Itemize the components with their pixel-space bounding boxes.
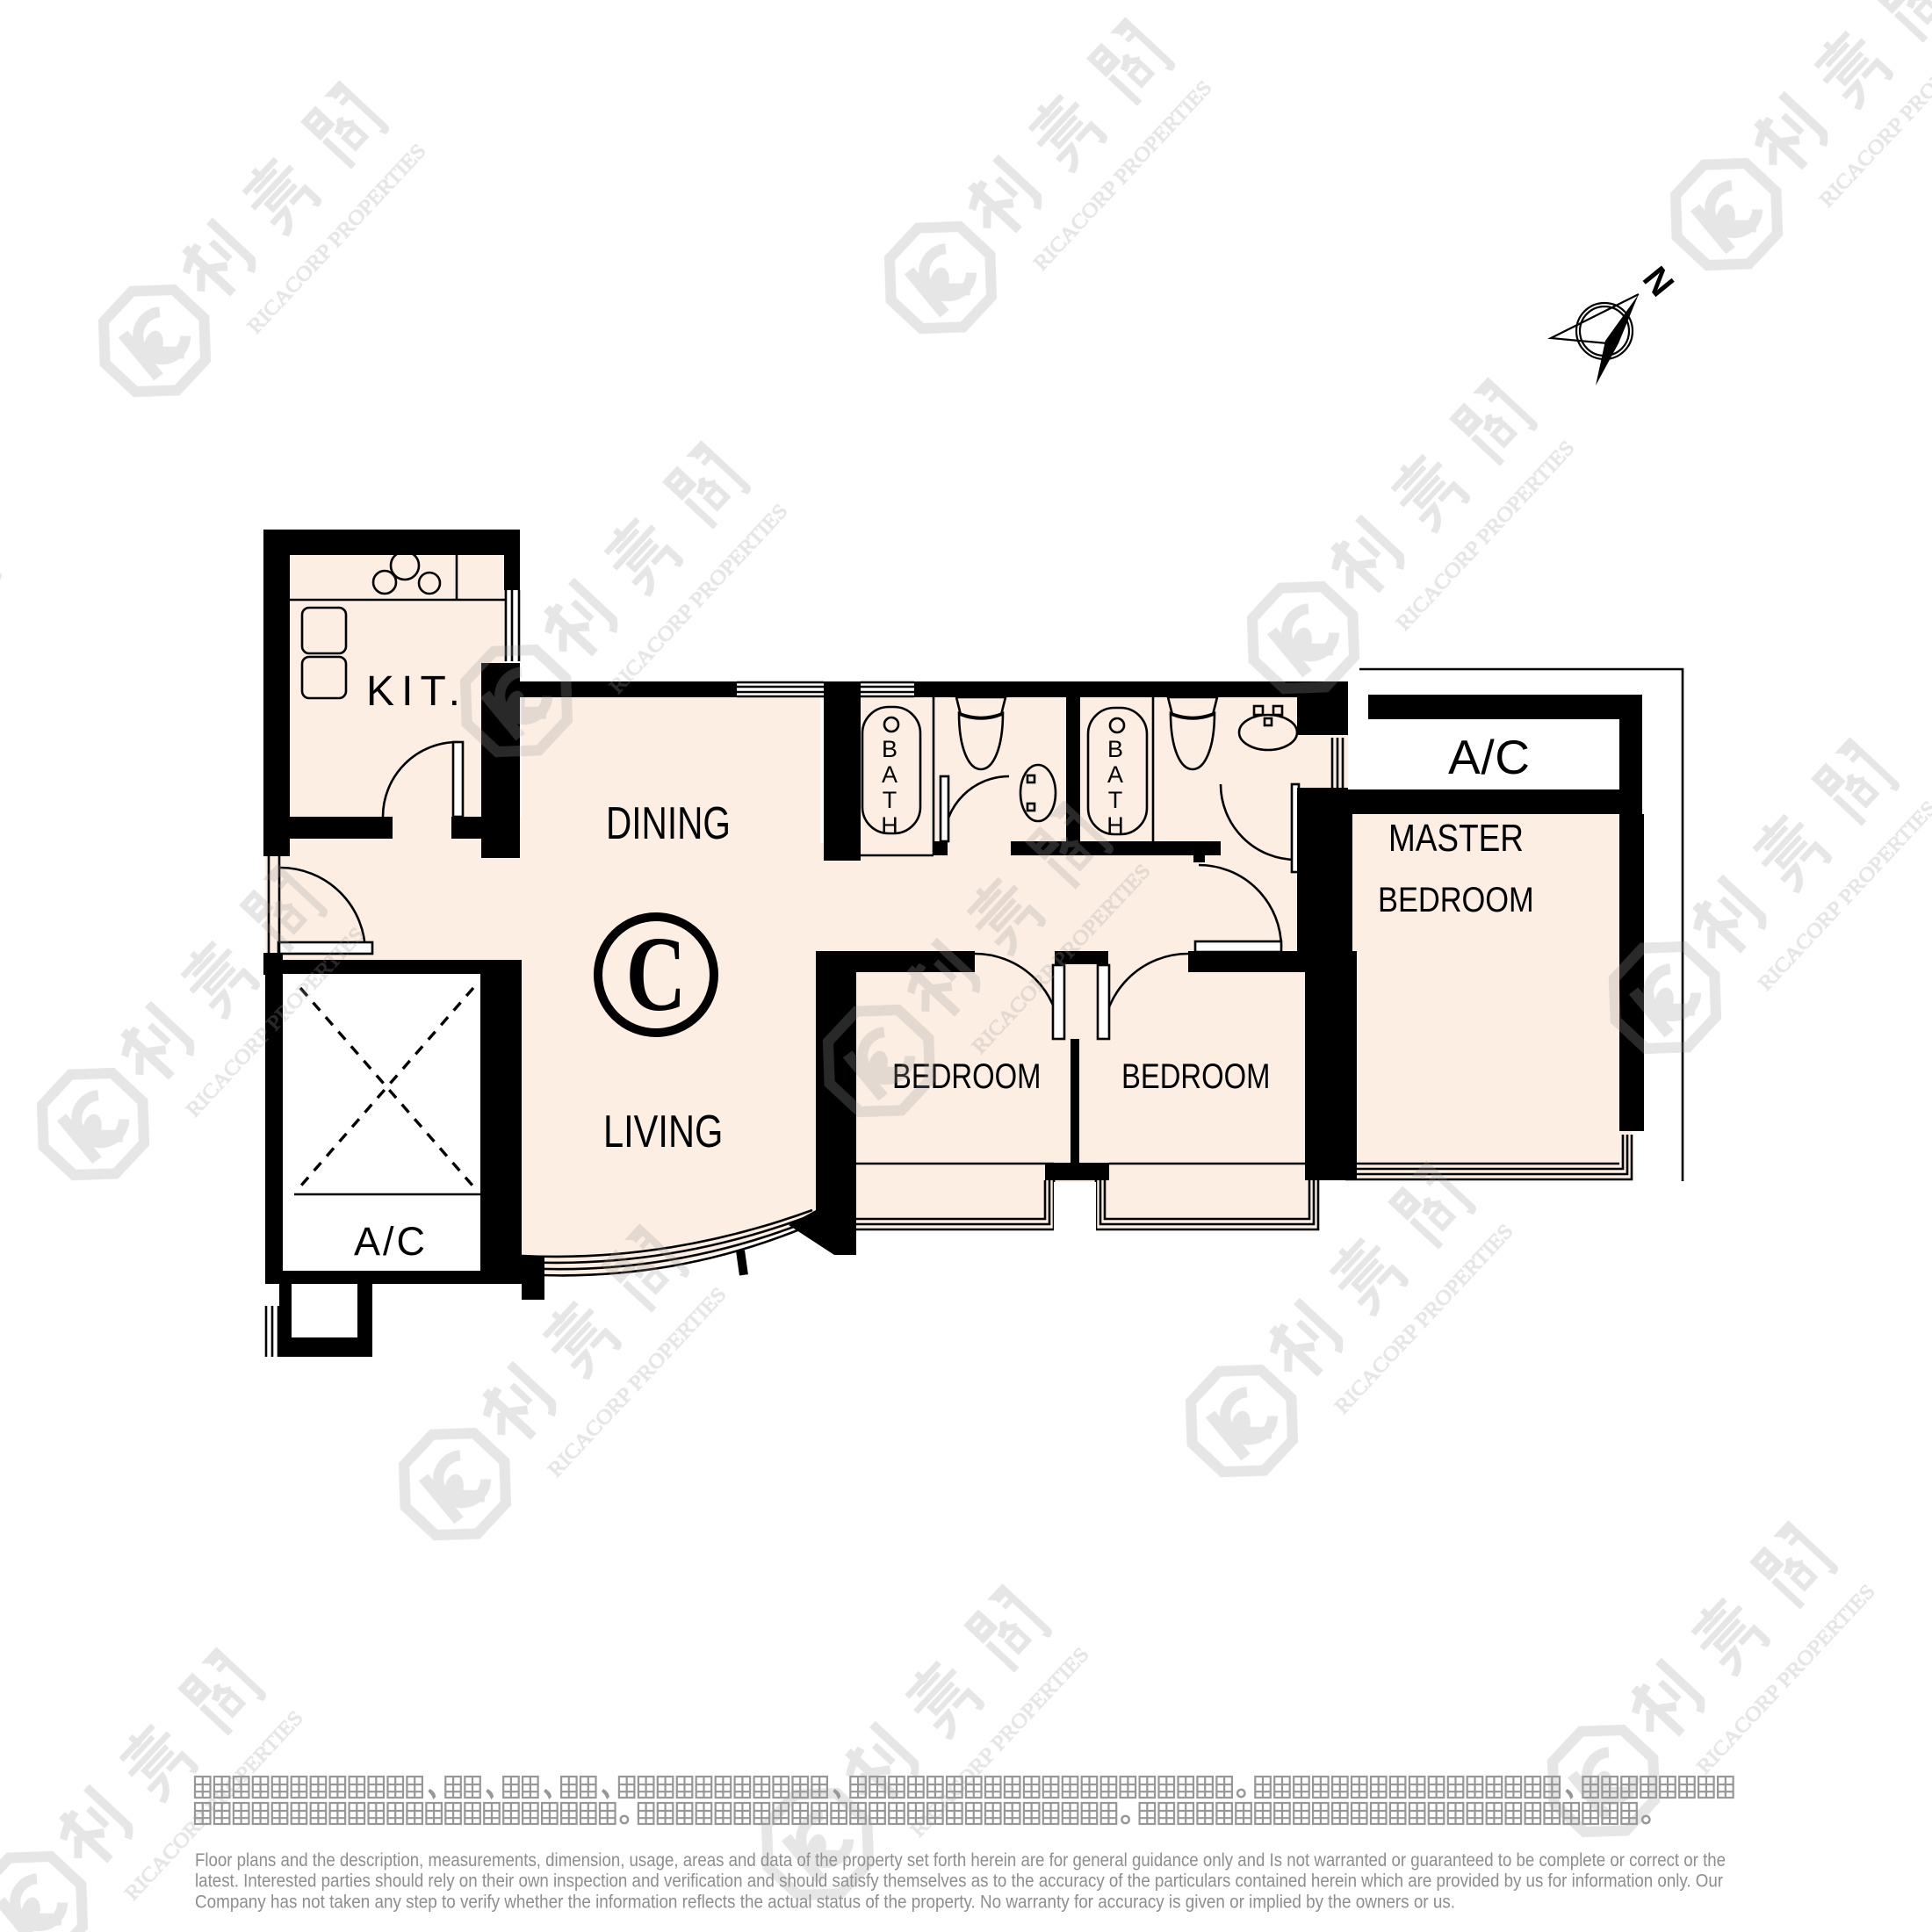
svg-text:T: T (883, 787, 898, 813)
svg-text:C: C (626, 915, 687, 1034)
svg-text:DINING: DINING (606, 797, 731, 848)
svg-text:H: H (1107, 812, 1124, 839)
svg-text:latest. Interested parties sh: latest. Interested parties should rely o… (195, 1871, 1723, 1892)
svg-text:A/C: A/C (1448, 730, 1530, 784)
svg-text:B: B (882, 736, 898, 762)
svg-text:A: A (882, 761, 898, 788)
svg-text:T: T (1108, 787, 1123, 813)
svg-text:N: N (1635, 260, 1681, 304)
svg-text:MASTER: MASTER (1388, 816, 1524, 860)
svg-text:BEDROOM: BEDROOM (1121, 1056, 1270, 1096)
svg-text:A/C: A/C (354, 1219, 425, 1264)
svg-text:B: B (1107, 736, 1123, 762)
svg-text:H: H (881, 812, 898, 839)
svg-text:Floor plans and the descriptio: Floor plans and the description, measure… (195, 1849, 1726, 1871)
svg-text:LIVING: LIVING (603, 1106, 723, 1157)
svg-text:BEDROOM: BEDROOM (1378, 880, 1534, 919)
svg-text:A: A (1107, 761, 1123, 788)
